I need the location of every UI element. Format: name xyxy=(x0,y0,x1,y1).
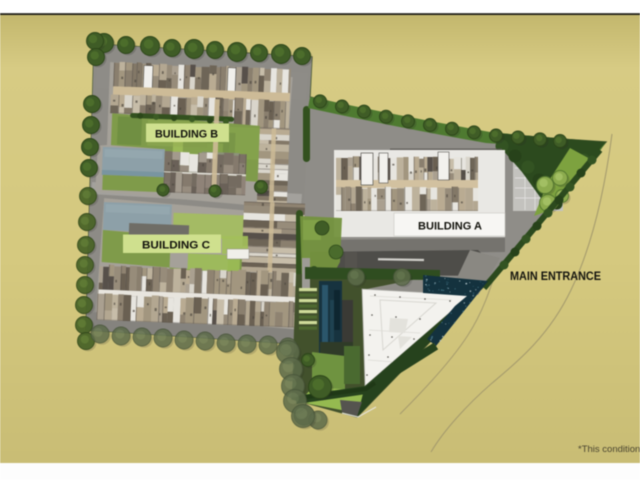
svg-text:*This conditions a: *This conditions a xyxy=(578,444,640,455)
svg-text:BUILDING B: BUILDING B xyxy=(155,129,218,141)
svg-text:MAIN ENTRANCE: MAIN ENTRANCE xyxy=(510,269,601,283)
svg-text:BUILDING C: BUILDING C xyxy=(142,240,210,252)
svg-text:BUILDING A: BUILDING A xyxy=(418,221,482,233)
